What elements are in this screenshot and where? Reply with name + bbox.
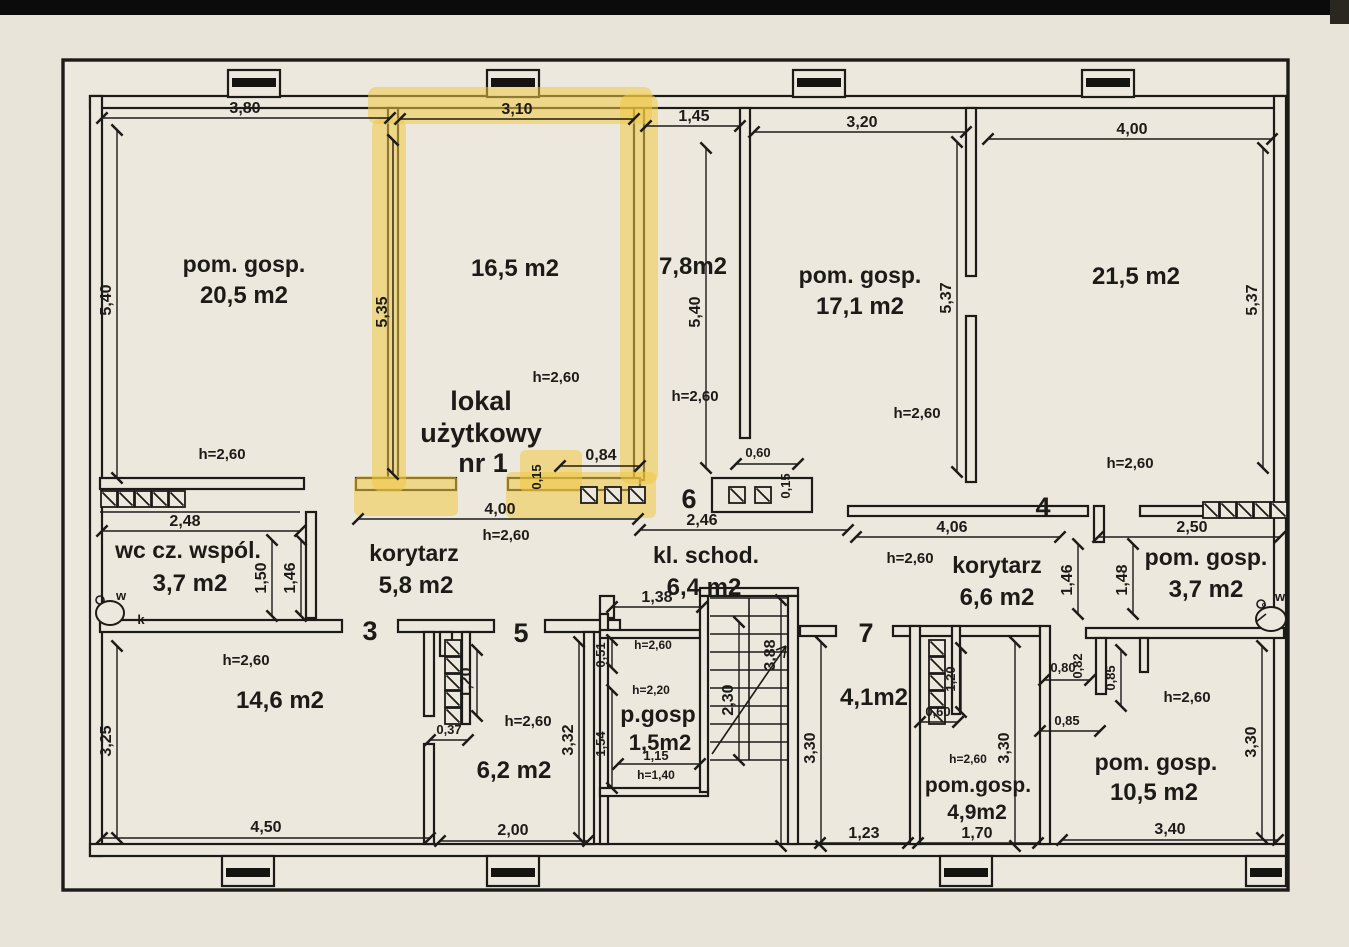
room-area-label: 6,4 m2 xyxy=(667,574,742,601)
room-area-label: 4,1m2 xyxy=(840,684,908,711)
room-area-label: 16,5 m2 xyxy=(471,255,559,282)
dimension-label: 0,85 xyxy=(1054,713,1079,728)
dimension-label: 4,06 xyxy=(936,519,967,536)
dimension-label: 0,15 xyxy=(529,464,544,489)
glass-block-icon xyxy=(1271,502,1287,518)
room-label: lokal xyxy=(450,386,512,416)
unit-number-label: 4 xyxy=(1035,492,1050,522)
glass-block-icon xyxy=(729,487,745,503)
glass-block-icon xyxy=(755,487,771,503)
dimension-label: 0,84 xyxy=(585,447,616,464)
wall-segment xyxy=(424,744,434,844)
dimension-label: 0,85 xyxy=(1103,665,1118,690)
room-area-label: 20,5 m2 xyxy=(200,282,288,309)
fixture-label: ° xyxy=(1261,600,1266,615)
room-area-label: 21,5 m2 xyxy=(1092,263,1180,290)
dimension-label: 1,54 xyxy=(593,731,608,757)
room-label: korytarz xyxy=(952,552,1041,578)
dimension-label: 1,20 xyxy=(943,666,958,691)
chimney-block xyxy=(940,856,992,886)
wall-segment xyxy=(424,632,434,716)
room-area-label: 3,7 m2 xyxy=(1169,576,1244,603)
floor-plan-photo: 3,80 3,10 1,45 3,20 4,00 2,48 4,00 2,46 … xyxy=(0,0,1349,947)
room-height-label: h=2,60 xyxy=(222,652,269,669)
room-height-label: h=2,60 xyxy=(532,369,579,386)
wall-segment xyxy=(398,620,494,632)
glass-block-icon xyxy=(605,487,621,503)
dimension-label: 2,46 xyxy=(686,512,717,529)
unit-number-label: 6 xyxy=(681,484,696,514)
glass-block-icon xyxy=(152,491,168,507)
wall-segment xyxy=(800,626,836,636)
room-label: użytkowy xyxy=(420,418,542,448)
room-area-label: 7,8m2 xyxy=(659,253,727,280)
dimension-label: 1,20 xyxy=(458,667,475,698)
glass-block-icon xyxy=(581,487,597,503)
room-label: kl. schod. xyxy=(653,542,759,568)
room-area-label: 4,9m2 xyxy=(947,801,1007,824)
room-height-label: h=1,40 xyxy=(637,768,675,782)
room-height-label: h=2,60 xyxy=(504,713,551,730)
room-label: pom.gosp. xyxy=(925,774,1031,797)
dimension-label: 3,20 xyxy=(846,114,877,131)
dimension-label: 4,50 xyxy=(250,819,281,836)
wall-segment xyxy=(600,788,708,796)
room-area-label: 1,5m2 xyxy=(629,730,691,755)
dimension-label: 3,30 xyxy=(1243,726,1260,757)
room-height-label: h=2,60 xyxy=(1163,689,1210,706)
room-label: korytarz xyxy=(369,540,458,566)
dimension-label: 0,60 xyxy=(745,445,770,460)
dimension-label: 1,46 xyxy=(1059,564,1076,595)
glass-block-icon xyxy=(169,491,185,507)
room-height-label: h=2,60 xyxy=(893,405,940,422)
room-label: pom. gosp. xyxy=(183,251,306,277)
room-area-label: 14,6 m2 xyxy=(236,687,324,714)
wall-segment xyxy=(1040,626,1050,844)
wall-segment xyxy=(100,478,304,489)
dimension-label: 5,40 xyxy=(687,296,704,327)
dimension-label: 1,50 xyxy=(253,562,270,593)
chimney-block xyxy=(487,856,539,886)
room-area-label: 6,2 m2 xyxy=(477,757,552,784)
dimension-label: 0,15 xyxy=(778,473,793,498)
dimension-label: 0,37 xyxy=(436,722,461,737)
dimension-label: 3,30 xyxy=(996,732,1013,763)
photo-edge-corner xyxy=(1330,0,1349,24)
room-label: pom. gosp. xyxy=(1145,544,1268,570)
wall-segment xyxy=(966,316,976,482)
dimension-label: 3,30 xyxy=(802,732,819,763)
dimension-label: 2,48 xyxy=(169,513,200,530)
photo-edge-band xyxy=(0,0,1349,15)
dimension-label: 1,23 xyxy=(848,825,879,842)
room-area-label: 6,6 m2 xyxy=(960,584,1035,611)
room-height-label: h=2,60 xyxy=(671,388,718,405)
chimney-block xyxy=(228,70,280,97)
wall-segment xyxy=(966,108,976,276)
room-label: nr 1 xyxy=(458,448,508,478)
glass-block-icon xyxy=(929,640,945,656)
wall-segment xyxy=(740,108,750,438)
dimension-label: 4,00 xyxy=(1116,121,1147,138)
room-height-label: h=2,60 xyxy=(949,752,987,766)
dimension-label: 0,82 xyxy=(1070,653,1085,678)
glass-block-icon xyxy=(101,491,117,507)
wall-segment xyxy=(1140,638,1148,672)
dimension-label: 3,10 xyxy=(501,101,532,118)
dimension-label: 5,37 xyxy=(938,282,955,313)
chimney-block xyxy=(222,856,274,886)
dimension-label: 5,37 xyxy=(1244,284,1261,315)
dimension-label: 3,40 xyxy=(1154,821,1185,838)
room-label: wc cz. wspól. xyxy=(114,537,261,563)
fixture-label: k xyxy=(137,612,145,627)
dimension-label: 3,25 xyxy=(98,725,115,756)
room-area-label: 3,7 m2 xyxy=(153,570,228,597)
room-area-label: 17,1 m2 xyxy=(816,293,904,320)
glass-block-icon xyxy=(118,491,134,507)
chimney-block xyxy=(793,70,845,97)
dimension-label: 3,80 xyxy=(229,100,260,117)
dimension-label: 1,46 xyxy=(282,562,299,593)
unit-number-label: 3 xyxy=(362,616,377,646)
fixture-label: w xyxy=(115,588,127,603)
wall-segment xyxy=(100,620,342,632)
wall-segment xyxy=(788,596,798,844)
glass-block-icon xyxy=(1203,502,1219,518)
dimension-label: 2,00 xyxy=(497,822,528,839)
glass-block-icon xyxy=(1254,502,1270,518)
glass-block-icon xyxy=(1220,502,1236,518)
room-height-label: h=2,20 xyxy=(632,683,670,697)
wall-segment xyxy=(90,844,1286,856)
fixture-label: w xyxy=(1274,589,1286,604)
room-label: pom. gosp. xyxy=(799,262,922,288)
room-label: p.gosp xyxy=(620,701,695,727)
dimension-label: 1,45 xyxy=(678,108,709,125)
room-label: pom. gosp. xyxy=(1095,749,1218,775)
dimension-label: 0,51 xyxy=(593,642,608,667)
wall-segment xyxy=(600,630,700,638)
glass-block-icon xyxy=(1237,502,1253,518)
dimension-label: 3,32 xyxy=(560,724,577,755)
glass-block-icon xyxy=(445,640,461,656)
room-height-label: h=2,60 xyxy=(198,446,245,463)
wall-segment xyxy=(306,512,316,618)
dimension-label: 5,40 xyxy=(98,284,115,315)
wall-segment xyxy=(700,596,708,792)
dimension-label: 2,50 xyxy=(1176,519,1207,536)
dimension-label: 0,60 xyxy=(925,704,950,719)
unit-number-label: 7 xyxy=(858,618,873,648)
room-area-label: 5,8 m2 xyxy=(379,572,454,599)
dimension-label: 1,70 xyxy=(961,825,992,842)
dimension-label: 3,88 xyxy=(762,639,779,670)
dimension-label: 5,35 xyxy=(374,296,391,327)
dimension-label: 2,30 xyxy=(720,684,737,715)
chimney-block xyxy=(1246,856,1286,886)
wall-segment xyxy=(1274,96,1286,856)
room-height-label: h=2,60 xyxy=(886,550,933,567)
room-height-label: h=2,60 xyxy=(482,527,529,544)
glass-block-icon xyxy=(629,487,645,503)
chimney-block xyxy=(1082,70,1134,97)
dimension-label: 1,48 xyxy=(1114,564,1131,595)
room-height-label: h=2,60 xyxy=(634,638,672,652)
wall-segment xyxy=(848,506,1088,516)
dimension-label: 4,00 xyxy=(484,501,515,518)
unit-number-label: 5 xyxy=(513,618,528,648)
glass-block-icon xyxy=(135,491,151,507)
wall-segment xyxy=(1086,628,1284,638)
room-height-label: h=2,60 xyxy=(1106,455,1153,472)
room-area-label: 10,5 m2 xyxy=(1110,779,1198,806)
wall-segment xyxy=(910,626,920,844)
